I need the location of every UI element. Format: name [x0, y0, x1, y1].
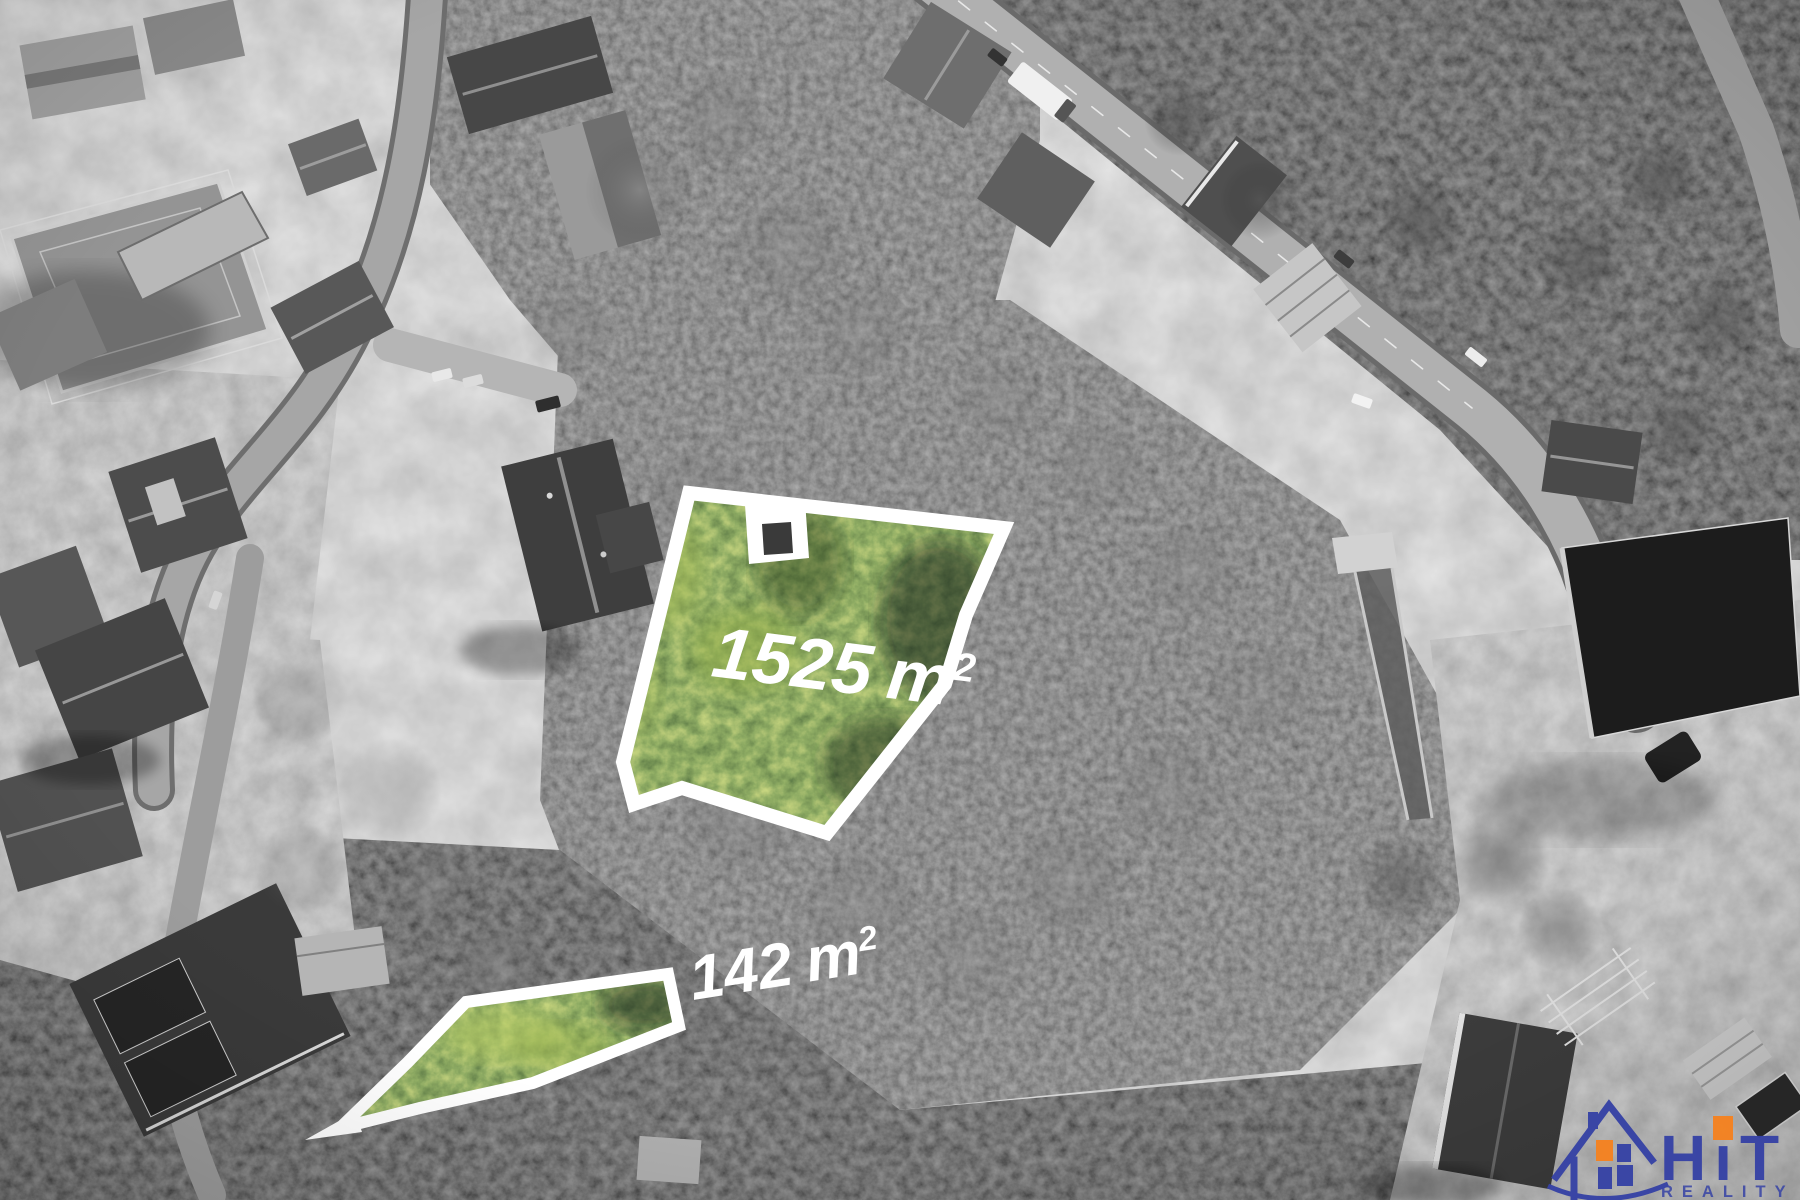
logo-orange-block — [1596, 1140, 1613, 1161]
aerial-scene: 1525m2 142m2 HiT REALITY — [0, 0, 1800, 1200]
logo-blue-block — [1617, 1165, 1633, 1186]
house-chimney — [1588, 1112, 1598, 1129]
vignette — [0, 0, 1800, 1200]
logo-blue-block — [1598, 1167, 1612, 1189]
logo-i-dot — [1713, 1116, 1733, 1140]
aerial-photo: 1525m2 142m2 HiT REALITY — [0, 0, 1800, 1200]
logo-tagline-text: REALITY — [1661, 1183, 1795, 1200]
logo-blue-block — [1617, 1144, 1631, 1162]
